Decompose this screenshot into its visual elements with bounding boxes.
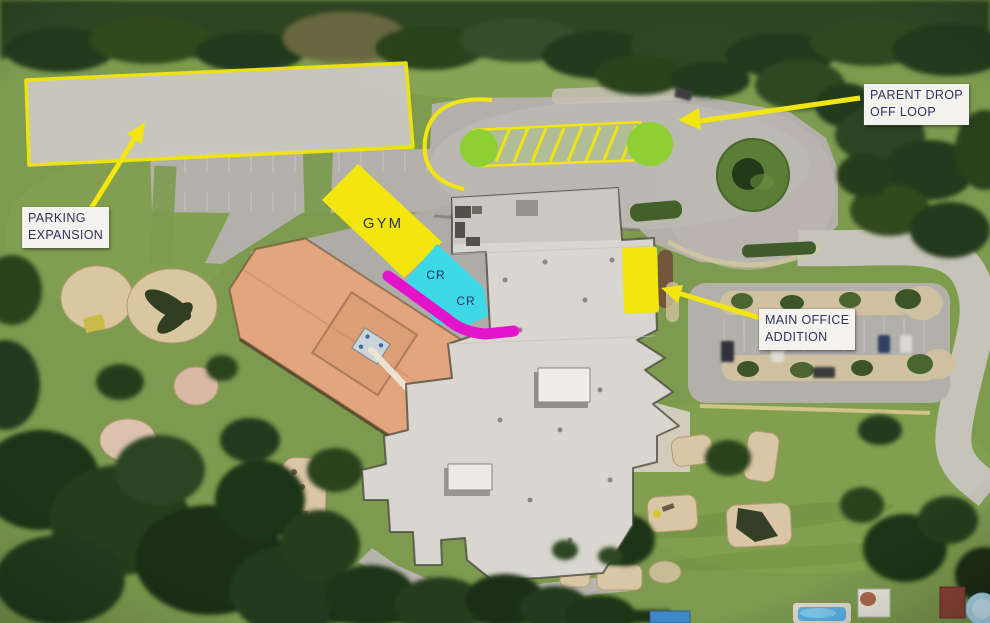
- parking-expansion-label: PARKING EXPANSION: [22, 207, 109, 248]
- parking-expansion-label-line2: EXPANSION: [28, 227, 103, 244]
- parent-drop-off-label-line2: OFF LOOP: [870, 104, 963, 121]
- main-office-label-line1: MAIN OFFICE: [765, 312, 849, 329]
- parent-drop-off-label: PARENT DROP OFF LOOP: [864, 84, 969, 125]
- site-plan-image: GYM CR CR PARKING EXPANSION PARENT DROP …: [0, 0, 990, 623]
- parking-expansion-label-line1: PARKING: [28, 210, 103, 227]
- main-office-addition-label: MAIN OFFICE ADDITION: [759, 309, 855, 350]
- main-office-label-line2: ADDITION: [765, 329, 849, 346]
- parent-drop-off-label-line1: PARENT DROP: [870, 87, 963, 104]
